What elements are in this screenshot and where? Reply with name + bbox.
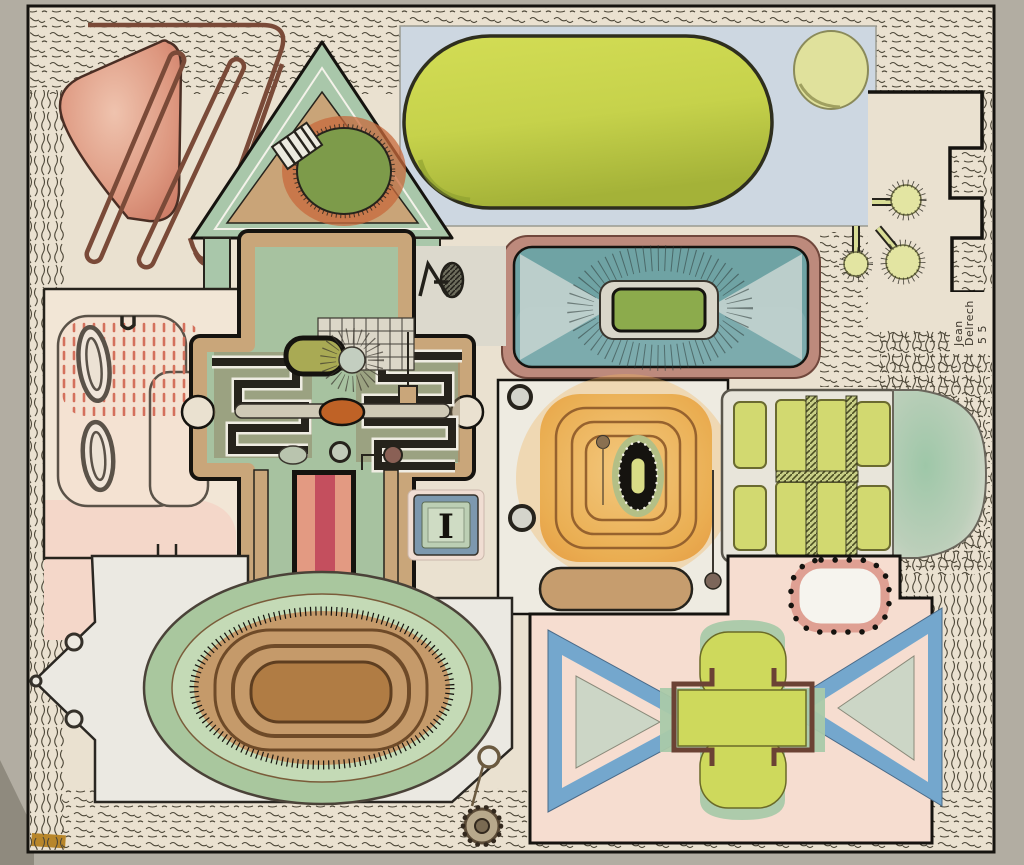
orange-target-panel <box>498 374 736 614</box>
artwork-canvas: I <box>0 0 1024 865</box>
green-screen-window <box>613 289 705 331</box>
side-notch <box>182 396 214 428</box>
window-grid <box>722 390 900 562</box>
olive-pod <box>286 338 344 374</box>
photographed-artwork: I <box>0 0 1024 865</box>
letter-i: I <box>438 507 454 547</box>
big-stadium-oval <box>144 572 500 804</box>
sunburst-ball <box>339 347 365 373</box>
yellow-circle <box>794 31 868 109</box>
joint-ring <box>66 711 82 727</box>
rivet-circle <box>510 506 534 530</box>
keyhole-core <box>612 435 664 517</box>
chartreuse-pill <box>404 36 772 208</box>
i-beam-tile: I <box>408 490 484 560</box>
ring-node <box>479 747 499 767</box>
teal-screen <box>502 236 820 378</box>
joint-ring <box>66 634 82 650</box>
tan-pill <box>540 568 692 610</box>
rivet-circle <box>509 386 531 408</box>
beaded-plate <box>791 560 889 632</box>
dome-shape <box>893 390 986 558</box>
rust-hub <box>320 399 364 425</box>
